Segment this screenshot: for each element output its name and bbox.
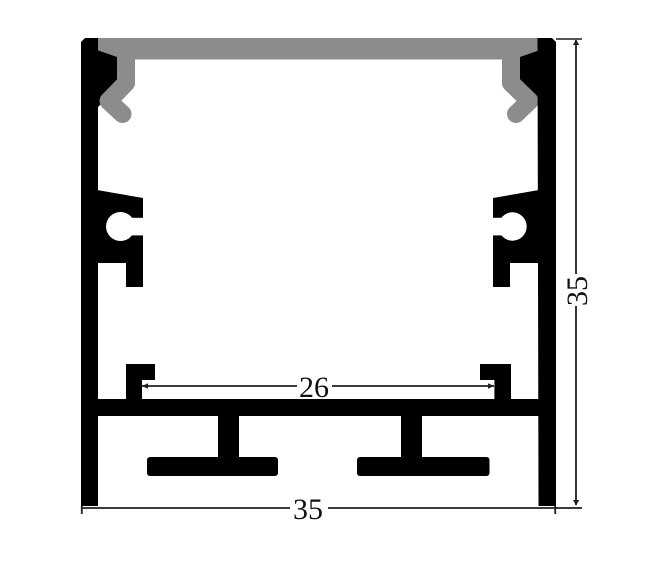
svg-text:35: 35 (561, 276, 594, 306)
svg-text:26: 26 (299, 371, 329, 404)
svg-text:35: 35 (293, 493, 323, 526)
